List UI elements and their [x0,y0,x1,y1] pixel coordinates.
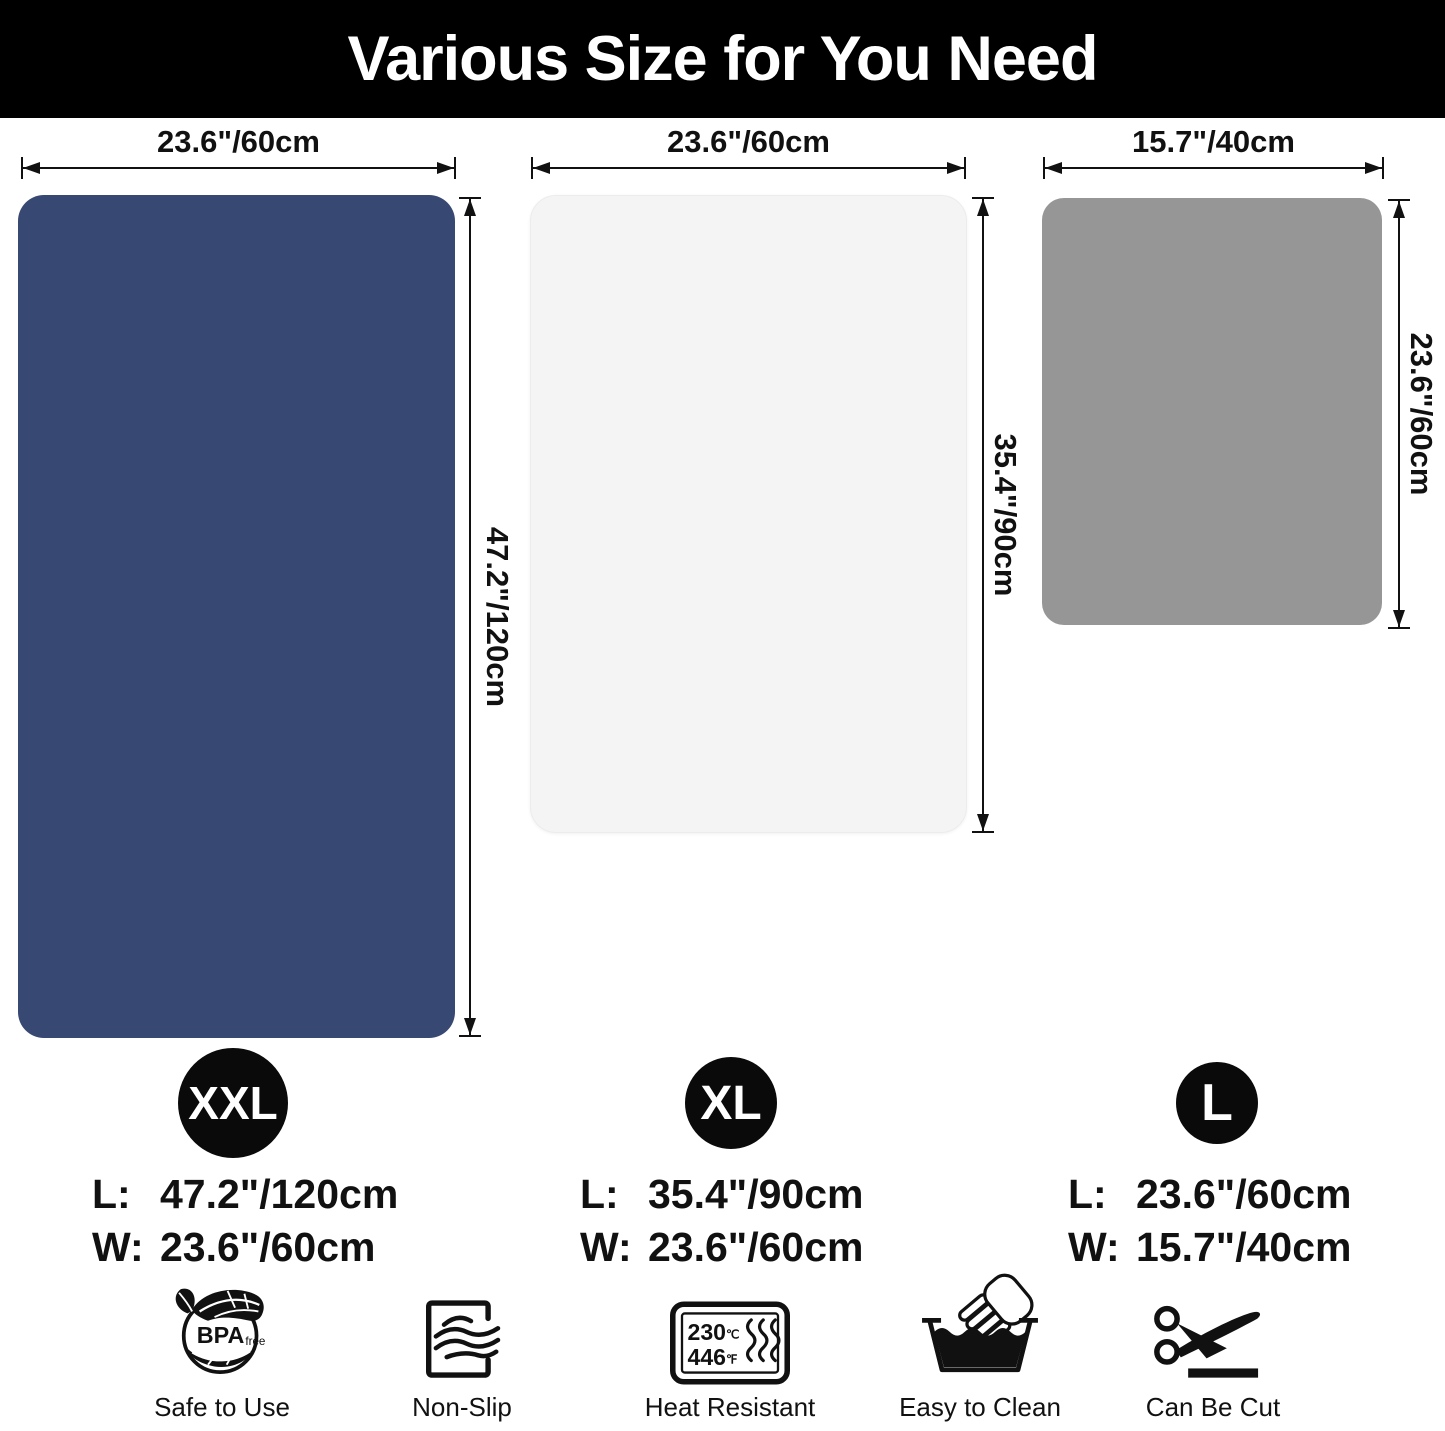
heat-resistant-icon: 230℃ 446℉ [670,1301,790,1385]
mat-xl-width-dim-label: 23.6"/60cm [530,124,967,160]
feature-non-slip: Non-Slip [352,1283,572,1423]
mat-l-length-dim-label: 23.6"/60cm [1401,264,1441,564]
easy-to-clean-icon [918,1271,1042,1385]
length-value: 35.4"/90cm [648,1168,900,1221]
feature-label: Non-Slip [412,1392,512,1423]
size-row-width: W: 15.7"/40cm [1068,1221,1388,1274]
feature-label: Can Be Cut [1146,1392,1280,1423]
size-text-xxl: L: 47.2"/120cm W: 23.6"/60cm [92,1168,412,1274]
mat-l-width-arrow-icon [1042,156,1385,180]
length-label: L: [92,1168,152,1221]
can-be-cut-icon [1153,1293,1273,1385]
size-text-l: L: 23.6"/60cm W: 15.7"/40cm [1068,1168,1388,1274]
feature-label: Easy to Clean [899,1392,1061,1423]
width-label: W: [580,1221,640,1274]
mat-xl-length-dim-label: 35.4"/90cm [985,365,1025,665]
mat-xxl-width-dim-label: 23.6"/60cm [20,124,457,160]
length-label: L: [580,1168,640,1221]
feature-can-be-cut: Can Be Cut [1103,1283,1323,1423]
feature-easy-to-clean: Easy to Clean [870,1283,1090,1423]
size-row-length: L: 23.6"/60cm [1068,1168,1388,1221]
size-text-xl: L: 35.4"/90cm W: 23.6"/60cm [580,1168,900,1274]
mat-l-width-dim-label: 15.7"/40cm [1042,124,1385,160]
feature-safe-to-use: BPA free Safe to Use [112,1283,332,1423]
bpa-free-icon: BPA free [166,1279,278,1385]
header-bar: Various Size for You Need [0,0,1445,118]
width-label: W: [1068,1221,1128,1274]
size-row-length: L: 35.4"/90cm [580,1168,900,1221]
mat-xxl-width-arrow-icon [20,156,457,180]
svg-text:230℃: 230℃ [688,1319,740,1345]
width-label: W: [92,1221,152,1274]
width-value: 23.6"/60cm [648,1221,900,1274]
mat-l [1042,198,1382,625]
size-row-length: L: 47.2"/120cm [92,1168,412,1221]
size-row-width: W: 23.6"/60cm [92,1221,412,1274]
width-value: 15.7"/40cm [1136,1221,1388,1274]
svg-text:446℉: 446℉ [688,1344,738,1370]
length-value: 23.6"/60cm [1136,1168,1388,1221]
size-badge-xl: XL [685,1057,777,1149]
width-value: 23.6"/60cm [160,1221,412,1274]
size-badge-xxl: XXL [178,1048,288,1158]
infographic-page: Various Size for You Need 23.6"/60cm 23.… [0,0,1445,1431]
feature-label: Heat Resistant [645,1392,816,1423]
size-badge-l: L [1176,1062,1258,1144]
size-row-width: W: 23.6"/60cm [580,1221,900,1274]
svg-text:free: free [245,1335,265,1348]
length-label: L: [1068,1168,1128,1221]
mat-xl [530,195,967,833]
feature-label: Safe to Use [154,1392,290,1423]
non-slip-icon [417,1295,507,1385]
length-value: 47.2"/120cm [160,1168,412,1221]
mat-xl-width-arrow-icon [530,156,967,180]
page-title: Various Size for You Need [348,23,1098,95]
svg-text:BPA: BPA [197,1322,245,1348]
mat-xxl [18,195,455,1038]
mat-xxl-length-dim-label: 47.2"/120cm [477,467,517,767]
feature-heat-resistant: 230℃ 446℉ Heat Resistant [620,1283,840,1423]
